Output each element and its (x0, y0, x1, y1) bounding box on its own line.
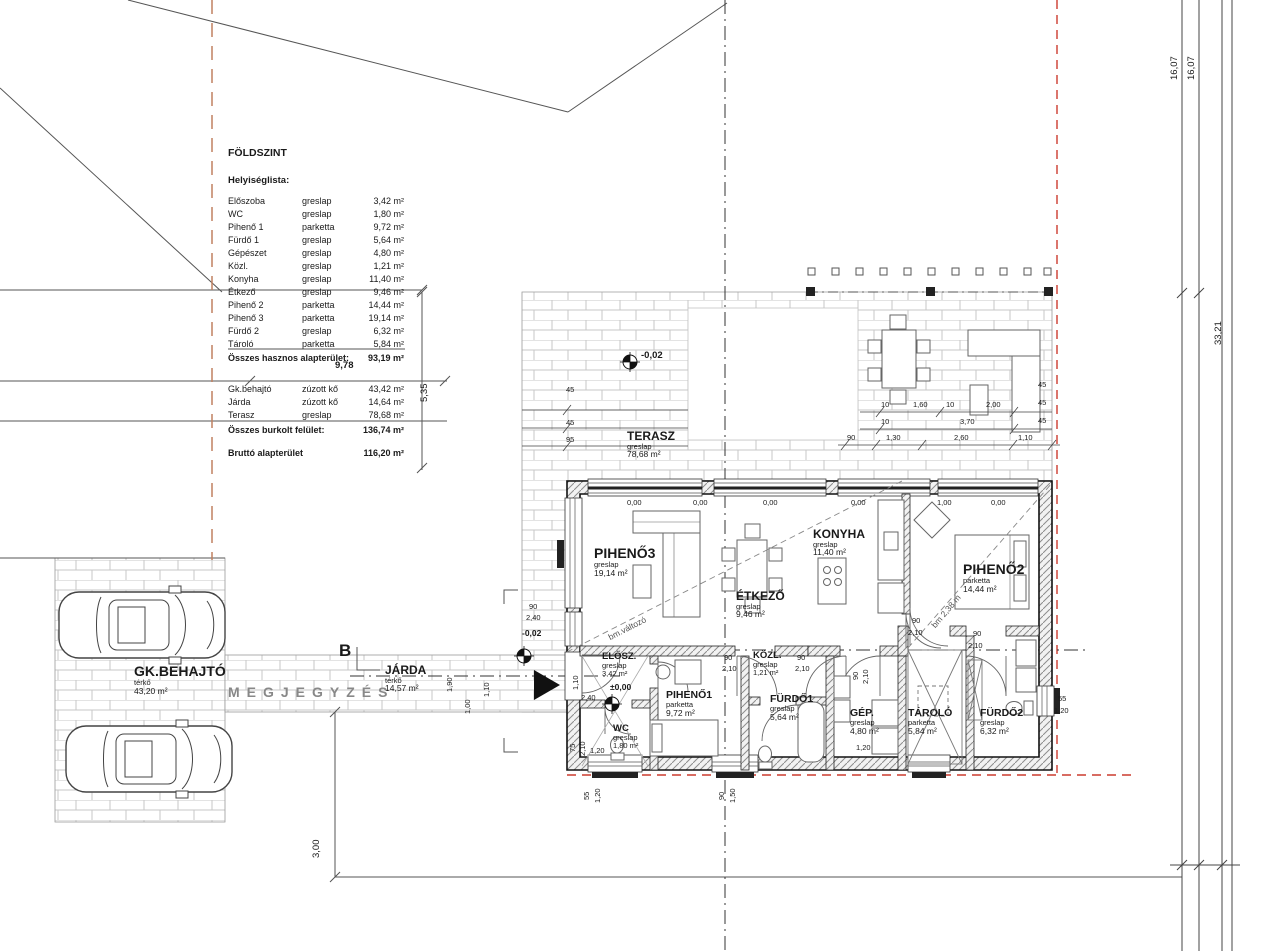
dim-gep-door-h: 2,10 (862, 669, 870, 684)
table-total-row: Összes hasznos alapterület:93,19 m² (228, 353, 404, 363)
dim-bw1-w: 55 (583, 792, 591, 800)
dim-gep-door-w: 90 (852, 672, 860, 680)
dim-r1r-1: 45 (1038, 399, 1046, 407)
dim-p2-door-h: 2,10 (908, 629, 923, 637)
table-row: Gépészetgreslap4,80 m² (228, 248, 404, 258)
dim-entry-h: 2,40 (581, 694, 596, 702)
dim-gep-w: 1,20 (856, 744, 871, 752)
dim-r1-0: 10 (881, 401, 889, 409)
legend-subtitle: Helyiséglista: (228, 176, 289, 186)
dim-lvl-2: 0,00 (763, 499, 778, 507)
dim-r1r-2: 45 (1038, 417, 1046, 425)
dim-lvl-1: 0,00 (693, 499, 708, 507)
dim-kozl-r-w: 90 (797, 654, 805, 662)
dim-f2-door-h: 2,10 (968, 642, 983, 650)
table-row: Járdazúzott kő14,64 m² (228, 397, 404, 407)
dim-lvl-4: 1,00 (937, 499, 952, 507)
megjegyzes-note: MEGJEGYZÉS (228, 685, 394, 700)
dim-r3-0: 90 (847, 434, 855, 442)
dim-jarda-0: 1,90 (446, 677, 454, 692)
room-label-konyha: KONYHA greslap 11,40 m² (813, 528, 865, 557)
table-row: Fürdő 2greslap6,32 m² (228, 326, 404, 336)
table-row: Pihenő 1parketta9,72 m² (228, 222, 404, 232)
room-label-furdo2: FÜRDŐ2 greslap 6,32 m² (980, 708, 1023, 736)
dim-f2-win-w: 55 (1058, 695, 1066, 703)
dim-bw2-h: 1,50 (729, 788, 737, 803)
dim-1607b: 16,07 (1187, 56, 1197, 80)
table-row: Fürdő 1greslap5,64 m² (228, 235, 404, 245)
dim-535: 5,35 (420, 384, 430, 403)
dim-r1-1: 1,60 (913, 401, 928, 409)
dim-r3-3: 1,10 (1018, 434, 1033, 442)
sheet-border-lines (1170, 0, 1240, 951)
table-row: Közl.greslap1,21 m² (228, 261, 404, 271)
table-row: Előszobagreslap3,42 m² (228, 196, 404, 206)
dim-t45a: 45 (566, 386, 574, 394)
dim-wc-door-h: 2,10 (579, 741, 587, 756)
table-row: Tárolóparketta5,84 m² (228, 339, 404, 349)
dim-978: 9,78 (335, 361, 354, 371)
dim-r1r-0: 45 (1038, 381, 1046, 389)
dim-r2-0: 10 (881, 418, 889, 426)
dim-f2-door-w: 90 (973, 630, 981, 638)
table-row: Gk.behajtózúzott kő43,42 m² (228, 384, 404, 394)
room-label-terasz: TERASZ greslap 78,68 m² (627, 430, 675, 459)
room-label-wc: WC greslap 1,80 m² (613, 724, 638, 750)
plan-linework (0, 0, 1280, 951)
table-row: Konyhagreslap11,40 m² (228, 274, 404, 284)
dim-leftwin-h: 2,40 (526, 614, 541, 622)
table-row: WCgreslap1,80 m² (228, 209, 404, 219)
room-label-pihen2: PIHENŐ2 parketta 14,44 m² (963, 562, 1024, 593)
room-label-elosz: ELŐSZ. greslap 3,42 m² (602, 652, 636, 678)
dim-3321: 33,21 (1214, 321, 1224, 345)
dim-f2-win-h: 1,20 (1054, 707, 1069, 715)
terrace-blank-area (688, 308, 858, 440)
dim-p2-door-w: 90 (912, 617, 920, 625)
dim-bw1-h: 1,20 (594, 788, 602, 803)
room-label-tarolo: TÁROLÓ parketta 5,84 m² (908, 708, 952, 736)
floor-plan-sheet: FÖLDSZINT Helyiséglista: Előszobagreslap… (0, 0, 1280, 951)
dim-lvl-0: 0,00 (627, 499, 642, 507)
dim-wc-door-w: 75 (569, 744, 577, 752)
room-label-etkezo: ÉTKEZŐ greslap 9,46 m² (736, 590, 785, 619)
dim-t45b: 45 (566, 419, 574, 427)
dim-kozl-l-w: 90 (724, 654, 732, 662)
dim-jarda-2: 1,10 (483, 682, 491, 697)
section-mark-b: B (339, 642, 351, 660)
top-glazing (588, 479, 1038, 496)
level-terrace: -0,02 (641, 351, 663, 361)
table-row: Pihenő 2parketta14,44 m² (228, 300, 404, 310)
dim-bw2-w: 90 (718, 792, 726, 800)
dim-r1-3: 2,00 (986, 401, 1001, 409)
dim-kozl-l-h: 2,10 (722, 665, 737, 673)
dim-r3-2: 2,60 (954, 434, 969, 442)
dim-jarda-1: 1,00 (464, 699, 472, 714)
room-label-gep: GÉP. greslap 4,80 m² (850, 708, 879, 736)
dim-r3-1: 1,30 (886, 434, 901, 442)
table-row: Étkezőgreslap9,46 m² (228, 287, 404, 297)
dim-kozl-r-h: 2,10 (795, 665, 810, 673)
room-label-furdo1: FÜRDŐ1 greslap 5,64 m² (770, 694, 813, 722)
dim-300: 3,00 (312, 840, 322, 859)
table-total-row: Összes burkolt felület:136,74 m² (228, 425, 404, 435)
car-1 (59, 586, 225, 664)
dim-t95: 95 (566, 436, 574, 444)
dim-r2-1: 3,70 (960, 418, 975, 426)
dim-lvl-5: 0,00 (991, 499, 1006, 507)
table-row: Teraszgreslap78,68 m² (228, 410, 404, 420)
room-label-pihen1: PIHENŐ1 parketta 9,72 m² (666, 690, 712, 718)
room-label-kozl: KÖZL. greslap 1,21 m² (753, 651, 782, 677)
dim-leftwin-w: 90 (529, 603, 537, 611)
dim-lvl-3: 0,00 (851, 499, 866, 507)
car-2 (66, 720, 232, 798)
dim-1607a: 16,07 (1170, 56, 1180, 80)
dim-entry-w: 1,10 (572, 675, 580, 690)
dim-r1-2: 10 (946, 401, 954, 409)
room-label-gkbehajto: GK.BEHAJTÓ térkő 43,20 m² (134, 664, 226, 695)
table-row: Pihenő 3parketta19,14 m² (228, 313, 404, 323)
legend-title: FÖLDSZINT (228, 148, 287, 159)
room-label-pihen3: PIHENŐ3 greslap 19,14 m² (594, 546, 655, 577)
level-zero: ±0,00 (610, 683, 631, 692)
dim-wc-w: 1,20 (590, 747, 605, 755)
table-gross-row: Bruttó alapterület116,20 m² (228, 448, 404, 458)
level-entry: -0,02 (522, 629, 541, 638)
